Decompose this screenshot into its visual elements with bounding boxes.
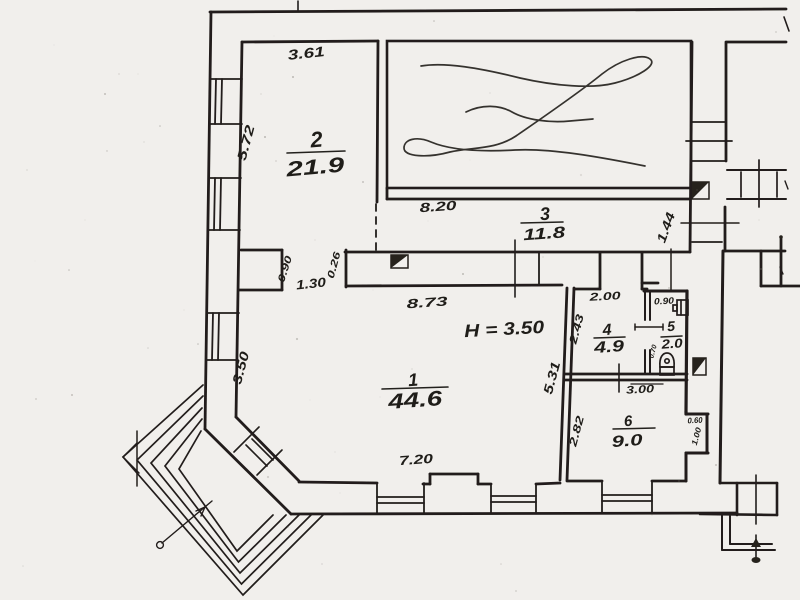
svg-text:5: 5 (667, 318, 676, 335)
svg-text:8.20: 8.20 (419, 198, 458, 216)
svg-text:1.30: 1.30 (295, 274, 327, 292)
svg-text:2.0: 2.0 (660, 335, 684, 352)
svg-text:0.60: 0.60 (687, 416, 703, 426)
svg-text:7.20: 7.20 (398, 451, 434, 468)
svg-text:H = 3.50: H = 3.50 (464, 317, 545, 341)
svg-text:3: 3 (539, 204, 550, 225)
svg-text:0.90: 0.90 (654, 295, 674, 306)
svg-text:4: 4 (601, 322, 612, 340)
svg-text:9.0: 9.0 (611, 432, 643, 451)
svg-text:44.6: 44.6 (386, 387, 443, 414)
svg-text:3.00: 3.00 (626, 383, 656, 397)
svg-text:4.9: 4.9 (592, 338, 625, 357)
svg-text:2.00: 2.00 (588, 290, 622, 304)
svg-text:11.8: 11.8 (523, 224, 566, 244)
svg-text:8.73: 8.73 (406, 293, 449, 311)
